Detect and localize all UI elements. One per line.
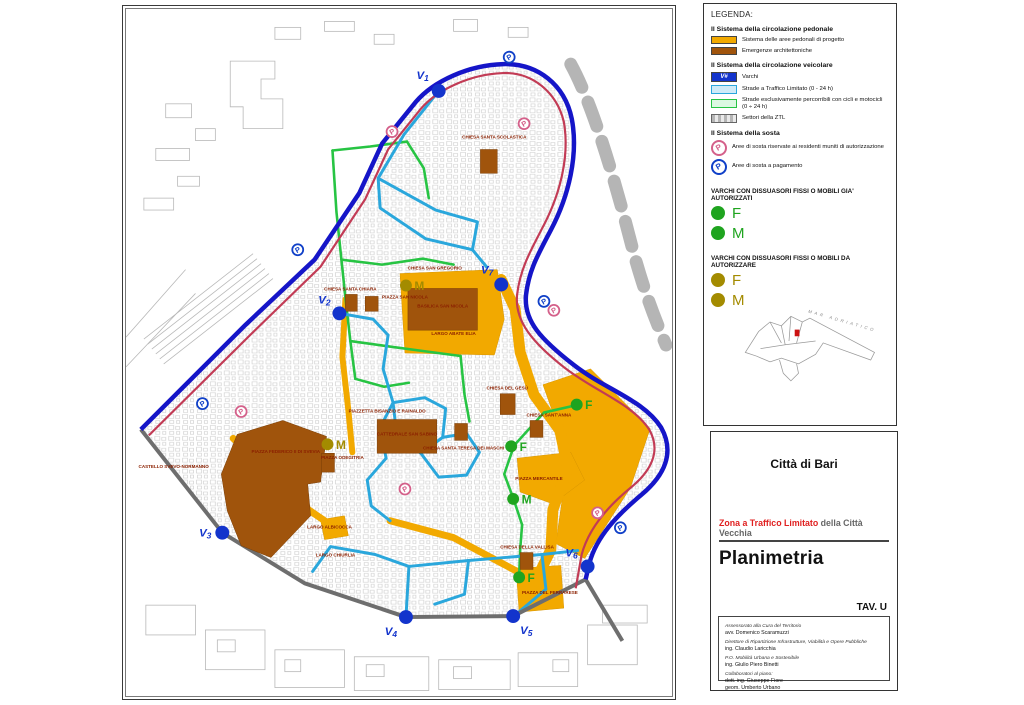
drawing-sheet: PPPPPPPPPPP FFMFMM V1V2V3V4V5V6V7 CHIESA… (0, 0, 1024, 705)
varco-dot-icon (332, 306, 346, 320)
legend-item: Settori della ZTL (711, 114, 889, 123)
legend-panel: LEGENDA: Il Sistema della circolazione p… (703, 3, 897, 426)
varco-label: V5 (520, 625, 533, 638)
legend-item: Strade esclusivamente percorribili con c… (711, 97, 889, 111)
breakwater-piers (571, 64, 666, 345)
legend-item: Strade a Traffico Limitato (0 - 24 h) (711, 85, 889, 94)
map-place-label: PIAZZA FEDERICO II DI SVEVIA (252, 449, 321, 454)
map-place-label: BASILICA SAN NICOLA (417, 303, 469, 308)
map-place-label: CHIESA SANTA CHIARA (324, 286, 377, 291)
map-place-label: CHIESA SANTA SCOLASTICA (462, 135, 527, 140)
map-place-label: CHIESA DELLA VALLISA (500, 545, 554, 550)
sheet-title: Planimetria (719, 548, 889, 570)
map-place-label: CHIESA SAN GREGORIO (408, 266, 463, 271)
varco-dot-icon (399, 610, 413, 624)
map-place-label: LARGO CHIURLIA (316, 553, 356, 558)
varco-label: V4 (385, 626, 398, 639)
bollard-letter: F (732, 205, 741, 222)
credit-name: ing. Giulio Piero Binetti (725, 662, 883, 668)
credit-role: P.O. Mobilità Urbana e Sostenibile (725, 656, 883, 661)
map-place-label: PIAZZA SAN NICOLA (382, 294, 429, 299)
varco-dot-icon (506, 609, 520, 623)
credit-name: dott. ing. Giuseppe Fiore (725, 678, 883, 684)
legend-item-label: Strade a Traffico Limitato (0 - 24 h) (742, 86, 833, 93)
varco-marker: V3 (199, 526, 229, 541)
bollard-letter: F (520, 440, 527, 454)
parking-residents-icon: P (711, 140, 727, 156)
varchi-group-entry: F (711, 205, 889, 222)
parking-paid-icon: P (711, 159, 727, 175)
legend-item: V#Varchi (711, 72, 889, 82)
legend-sections: Il Sistema della circolazione pedonaleSi… (711, 26, 889, 175)
parking-residents-icon: P (236, 406, 247, 417)
bollard-letter: F (585, 398, 592, 412)
bollard-letter: M (336, 438, 346, 452)
parking-residents-icon: P (399, 484, 410, 495)
inset-sea-caption: MAR ADRIATICO (808, 309, 877, 333)
bollard-dot-icon (711, 226, 725, 240)
bollard-dot-icon (711, 273, 725, 287)
varchi-group-heading: VARCHI CON DISSUASORI FISSI O MOBILI GIA… (711, 188, 889, 202)
sheet-number: TAV. U (857, 602, 887, 613)
subtitle-ztl: Zona a Traffico Limitato (719, 518, 818, 528)
map-frame: PPPPPPPPPPP FFMFMM V1V2V3V4V5V6V7 CHIESA… (122, 5, 676, 700)
legend-item-label: Aree di sosta a pagamento (732, 163, 802, 170)
map-place-label: LARGO ALBICOCCA (307, 525, 353, 530)
legend-section-heading: Il Sistema della circolazione pedonale (711, 26, 889, 33)
varco-dot-icon (432, 84, 446, 98)
bollard-letter: F (528, 571, 535, 585)
legend-item-label: Settori della ZTL (742, 115, 785, 122)
credit-name: avv. Domenico Scaramuzzi (725, 630, 883, 636)
bollard-dot-icon (513, 571, 525, 583)
pedestrian-area-swatch (711, 36, 737, 44)
bollard-dot-icon (711, 293, 725, 307)
parking-residents-icon: P (387, 126, 398, 137)
map-place-label: CASTELLO SVEVO-NORMANNO (139, 464, 210, 469)
bollard-dot-icon (400, 280, 412, 292)
ztl-sector-swatch (711, 114, 737, 123)
varchi-group-entry: F (711, 272, 889, 289)
map-place-label: PIAZZA DEL FERRARESE (522, 590, 578, 595)
credit-name: ing. Claudio Laricchia (725, 646, 883, 652)
map-inner-frame: PPPPPPPPPPP FFMFMM V1V2V3V4V5V6V7 CHIESA… (125, 8, 673, 697)
map-place-label: PIAZZA ODEGITRIA (321, 455, 364, 460)
legend-title: LEGENDA: (711, 10, 889, 19)
credit-role: Direttore di Ripartizione Infrastrutture… (725, 640, 883, 645)
sheet-subtitle: Zona a Traffico Limitato della Città Vec… (719, 518, 889, 542)
varco-swatch: V# (711, 72, 737, 82)
map-place-label: CHIESA SANT'ANNA (526, 413, 572, 418)
old-town-location-marker (795, 330, 800, 337)
bike-street-swatch (711, 99, 737, 108)
map-place-label: LARGO ABATE ELIA (431, 331, 476, 336)
credit-role: Assessorato alla Cura del Territorio (725, 624, 883, 629)
legend-item: Emergenze architettoniche (711, 47, 889, 55)
bollard-letter: M (732, 225, 745, 242)
parking-paid-icon: P (292, 244, 303, 255)
legend-item-label: Aree di sosta riservate ai residenti mun… (732, 144, 884, 151)
legend-item: PAree di sosta a pagamento (711, 159, 889, 175)
parking-paid-icon: P (615, 522, 626, 533)
location-inset-map: MAR ADRIATICO (732, 290, 884, 392)
varco-marker: V5 (506, 609, 533, 638)
ztl-street-swatch (711, 85, 737, 94)
bollard-letter: M (522, 492, 532, 506)
legend-section-heading: Il Sistema della sosta (711, 130, 889, 137)
map-canvas: PPPPPPPPPPP FFMFMM V1V2V3V4V5V6V7 CHIESA… (126, 9, 672, 696)
varco-label: V3 (199, 528, 212, 541)
parking-residents-icon: P (548, 305, 559, 316)
legend-item: PAree di sosta riservate ai residenti mu… (711, 140, 889, 156)
bollard-dot-icon (507, 493, 519, 505)
varco-dot-icon (494, 278, 508, 292)
varco-dot-icon (215, 526, 229, 540)
map-place-label: CHIESA DEL GESÙ (486, 385, 527, 391)
varchi-group-entry: M (711, 225, 889, 242)
parking-residents-icon: P (519, 118, 530, 129)
parking-paid-icon: P (504, 52, 515, 63)
legend-item-label: Strade esclusivamente percorribili con c… (742, 97, 889, 111)
city-title: Città di Bari (711, 457, 897, 471)
bollard-letter: M (414, 279, 424, 293)
bollard-dot-icon (571, 399, 583, 411)
map-place-label: CATTEDRALE SAN SABINO (377, 431, 438, 436)
legend-item-label: Varchi (742, 74, 758, 81)
map-place-label: PIAZZA MERCANTILE (515, 476, 562, 481)
credit-name: geom. Umberto Urbano (725, 685, 883, 691)
bollard-dot-icon (711, 206, 725, 220)
architectural-emergency-swatch (711, 47, 737, 55)
credits-box: Assessorato alla Cura del Territorioavv.… (718, 616, 890, 681)
parking-paid-icon: P (197, 398, 208, 409)
legend-item: Sistema delle aree pedonali di progetto (711, 36, 889, 44)
bollard-dot-icon (505, 440, 517, 452)
title-block: Città di Bari Zona a Traffico Limitato d… (710, 431, 898, 691)
bollard-dot-icon (322, 438, 334, 450)
map-place-label: PIAZZETTA BISANZIO E RAINALDO (349, 409, 427, 414)
credit-role: Collaboratori al piano: (725, 672, 883, 677)
varco-dot-icon (581, 559, 595, 573)
parking-paid-icon: P (538, 296, 549, 307)
legend-section-heading: Il Sistema della circolazione veicolare (711, 62, 889, 69)
varco-label: V1 (416, 70, 429, 83)
map-place-label: CHIESA SANTA TERESA DEI MASCHI (423, 445, 504, 450)
varchi-group-heading: VARCHI CON DISSUASORI FISSI O MOBILI DA … (711, 255, 889, 269)
bollard-letter: F (732, 272, 741, 289)
parking-residents-icon: P (592, 507, 603, 518)
legend-item-label: Sistema delle aree pedonali di progetto (742, 37, 844, 44)
legend-item-label: Emergenze architettoniche (742, 48, 812, 55)
